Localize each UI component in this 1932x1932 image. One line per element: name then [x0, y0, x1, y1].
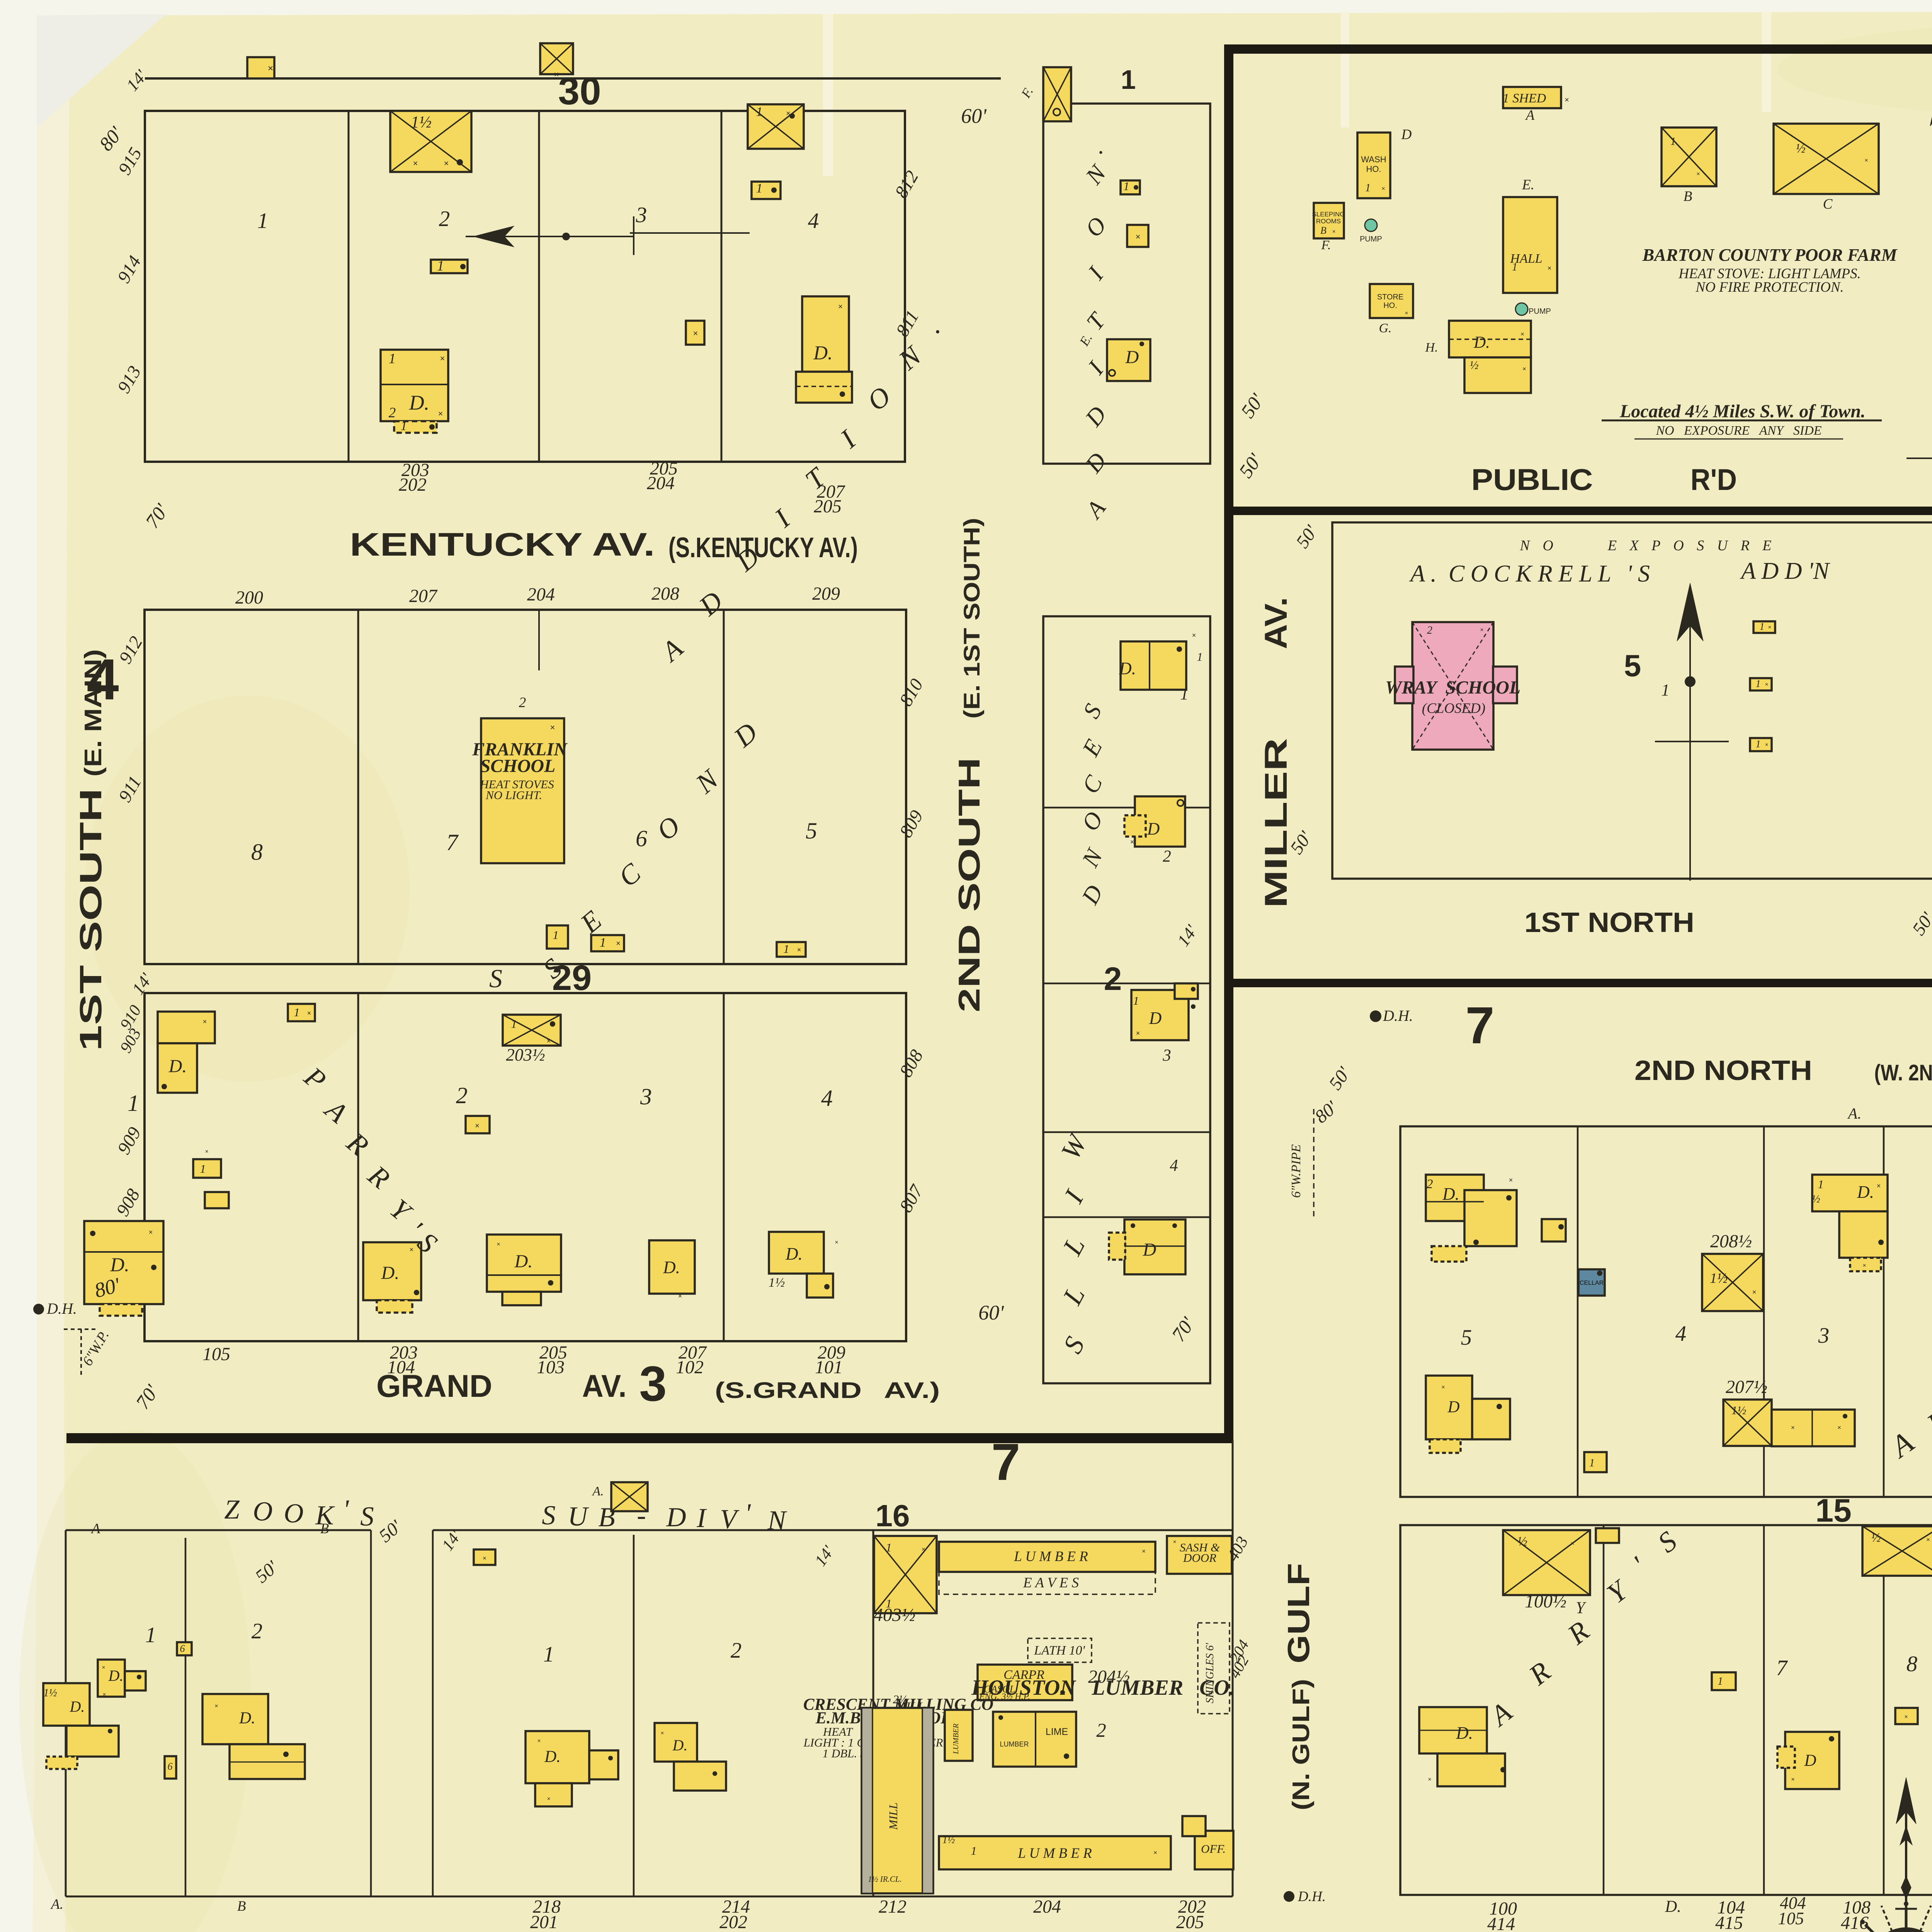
svg-text:×: ×: [1864, 157, 1868, 164]
svg-text:AV.: AV.: [582, 1369, 627, 1404]
svg-text:SCHOOL: SCHOOL: [480, 756, 556, 776]
svg-text:×: ×: [547, 1796, 551, 1802]
svg-text:×: ×: [1791, 1424, 1795, 1431]
svg-text:(E. 1ST SOUTH): (E. 1ST SOUTH): [959, 518, 985, 719]
svg-text:1: 1: [756, 181, 763, 196]
svg-text:100½: 100½: [1525, 1591, 1566, 1612]
svg-text:1: 1: [1365, 182, 1371, 194]
svg-text:×: ×: [661, 1730, 664, 1736]
svg-text:×: ×: [444, 158, 449, 168]
svg-text:×: ×: [483, 1554, 486, 1562]
svg-text:ROOMS: ROOMS: [1316, 218, 1341, 225]
svg-text:D: D: [1401, 127, 1412, 143]
svg-text:415: 415: [1715, 1913, 1743, 1932]
svg-text:A . C O C K R E L L: A . C O C K R E L L: [1409, 561, 1611, 587]
svg-text:1: 1: [1180, 685, 1189, 703]
svg-text:×: ×: [1571, 1540, 1575, 1547]
svg-text:2: 2: [731, 1638, 742, 1663]
svg-text:×: ×: [1480, 627, 1483, 633]
svg-text:1: 1: [1197, 650, 1203, 663]
svg-text:×: ×: [1768, 624, 1772, 631]
svg-text:7: 7: [1465, 996, 1494, 1054]
svg-text:×: ×: [786, 109, 791, 118]
svg-text:6: 6: [636, 826, 647, 851]
svg-text:1: 1: [294, 1005, 300, 1019]
svg-text:1½: 1½: [44, 1687, 57, 1699]
svg-text:×: ×: [1381, 185, 1385, 192]
svg-text:×: ×: [1765, 742, 1769, 748]
svg-text:6: 6: [168, 1761, 173, 1772]
svg-text:U: U: [568, 1502, 589, 1532]
svg-text:403½: 403½: [874, 1605, 915, 1625]
svg-text:' S: ' S: [1627, 561, 1650, 587]
svg-text:105: 105: [1778, 1909, 1804, 1928]
svg-text:B: B: [1320, 225, 1327, 236]
svg-text:NO LIGHT.: NO LIGHT.: [485, 788, 542, 802]
svg-text:D: D: [1149, 1009, 1162, 1028]
svg-text:D.: D.: [108, 1667, 124, 1684]
svg-text:I: I: [696, 1503, 707, 1533]
svg-text:½: ½: [1796, 141, 1806, 156]
svg-text:2: 2: [1427, 1177, 1433, 1191]
svg-text:D.: D.: [813, 342, 833, 364]
svg-text:D.: D.: [544, 1748, 561, 1766]
svg-text:LUMBER: LUMBER: [1000, 1740, 1029, 1748]
svg-text:1: 1: [1718, 1675, 1723, 1687]
svg-text:200: 200: [235, 587, 263, 608]
svg-text:×: ×: [307, 1009, 311, 1017]
svg-text:C: C: [1823, 196, 1833, 212]
svg-text:PUMP: PUMP: [1360, 235, 1382, 243]
svg-text:NO EXPOSURE ANY SIDE: NO EXPOSURE ANY SIDE: [1655, 423, 1821, 438]
svg-text:102: 102: [676, 1357, 704, 1378]
svg-text:DOOR: DOOR: [1183, 1551, 1216, 1565]
svg-text:4: 4: [821, 1085, 833, 1111]
svg-text:207: 207: [409, 586, 438, 606]
svg-text:1: 1: [437, 258, 444, 274]
svg-text:×: ×: [1441, 1384, 1445, 1391]
svg-text:4: 4: [1675, 1321, 1687, 1346]
svg-text:7: 7: [1776, 1656, 1788, 1680]
svg-text:202: 202: [399, 474, 427, 495]
svg-text:1½: 1½: [769, 1276, 785, 1290]
svg-text:×: ×: [554, 70, 559, 79]
svg-text:Z: Z: [224, 1495, 240, 1525]
svg-text:D.: D.: [168, 1056, 187, 1077]
svg-text:D.: D.: [514, 1251, 533, 1272]
svg-text:×: ×: [268, 63, 274, 74]
svg-text:×: ×: [537, 1738, 541, 1744]
svg-text:212: 212: [879, 1896, 906, 1917]
svg-text:D.H.: D.H.: [46, 1300, 77, 1317]
svg-text:STORE: STORE: [1377, 293, 1404, 301]
svg-text:1 SHED: 1 SHED: [1503, 91, 1546, 105]
svg-text:1: 1: [1123, 179, 1129, 193]
svg-text:1: 1: [389, 351, 396, 367]
svg-text:D.: D.: [1119, 659, 1136, 678]
svg-text:2: 2: [1096, 1720, 1106, 1742]
svg-text:S: S: [489, 964, 502, 993]
svg-text:LIME: LIME: [1046, 1726, 1068, 1737]
svg-text:×: ×: [1765, 681, 1769, 688]
svg-text:1: 1: [1756, 678, 1761, 689]
svg-text:1½ IR.CL.: 1½ IR.CL.: [868, 1874, 902, 1884]
svg-text:2: 2: [456, 1083, 468, 1108]
svg-text:×: ×: [1520, 330, 1524, 338]
svg-text:BARTON COUNTY POOR FARM: BARTON COUNTY POOR FARM: [1642, 245, 1898, 265]
svg-text:414: 414: [1487, 1914, 1515, 1932]
svg-text:(E. MAIN): (E. MAIN): [80, 649, 107, 777]
svg-text:×: ×: [547, 1037, 551, 1045]
svg-text:60': 60': [961, 104, 987, 128]
svg-text:1: 1: [1670, 136, 1676, 148]
svg-text:(S.GRAND: (S.GRAND: [715, 1378, 862, 1403]
svg-text:HO.: HO.: [1366, 164, 1381, 174]
svg-text:×: ×: [922, 1546, 925, 1553]
svg-text:½: ½: [1517, 1534, 1527, 1549]
svg-text:E A V E S: E A V E S: [1023, 1575, 1079, 1591]
svg-text:×: ×: [1136, 1029, 1140, 1037]
svg-text:×: ×: [203, 1018, 207, 1026]
svg-text:½: ½: [1871, 1531, 1881, 1545]
svg-text:×: ×: [149, 1228, 153, 1236]
svg-text:(N. GULF): (N. GULF): [1288, 1679, 1315, 1810]
svg-text:A D D 'N: A D D 'N: [1740, 558, 1830, 584]
svg-text:D.H.: D.H.: [1298, 1889, 1326, 1905]
svg-text:B: B: [237, 1898, 246, 1914]
svg-text:GULF: GULF: [1281, 1563, 1316, 1663]
svg-text:202: 202: [719, 1912, 747, 1932]
svg-text:OFF.: OFF.: [1201, 1842, 1226, 1855]
svg-text:2ND SOUTH: 2ND SOUTH: [952, 757, 986, 1012]
svg-text:R'D: R'D: [1690, 463, 1737, 497]
svg-text:×: ×: [1192, 631, 1196, 639]
svg-text:×: ×: [102, 1664, 105, 1671]
svg-text:209: 209: [812, 583, 840, 604]
svg-text:3: 3: [640, 1084, 652, 1109]
svg-text:1: 1: [1512, 261, 1517, 273]
svg-text:½: ½: [1812, 1193, 1820, 1205]
svg-text:×: ×: [1509, 1176, 1513, 1184]
svg-text:D: D: [1143, 1240, 1156, 1260]
svg-text:×: ×: [693, 328, 698, 338]
svg-text:2: 2: [1163, 847, 1171, 866]
svg-text:HO.: HO.: [1383, 301, 1397, 310]
svg-text:HOUSTON LUMBER CO.: HOUSTON LUMBER CO.: [971, 1676, 1235, 1700]
svg-text:1: 1: [145, 1623, 156, 1647]
svg-text:208: 208: [651, 583, 679, 604]
svg-text:6"W.PIPE: 6"W.PIPE: [1289, 1144, 1303, 1198]
svg-text:60': 60': [978, 1301, 1004, 1324]
svg-text:1: 1: [543, 1642, 554, 1667]
svg-text:D.H.: D.H.: [1383, 1007, 1413, 1024]
svg-text:×: ×: [1173, 1539, 1177, 1545]
svg-text:D: D: [1147, 819, 1160, 838]
svg-text:5: 5: [1461, 1325, 1472, 1350]
svg-text:D.: D.: [663, 1258, 680, 1277]
svg-text:½: ½: [1469, 358, 1478, 372]
svg-text:L U M B E R: L U M B E R: [1017, 1845, 1092, 1861]
svg-text:1: 1: [783, 942, 789, 956]
svg-text:×: ×: [1752, 1288, 1757, 1296]
svg-text:×: ×: [1877, 1182, 1881, 1190]
svg-text:B: B: [320, 1521, 329, 1537]
svg-text:LUMBER: LUMBER: [952, 1724, 960, 1755]
svg-text:×: ×: [1837, 1424, 1841, 1431]
svg-text:B: B: [1684, 189, 1692, 204]
svg-text:AV.: AV.: [1259, 597, 1294, 649]
svg-text:1: 1: [401, 419, 407, 433]
svg-text:1: 1: [1589, 1457, 1595, 1469]
svg-text:16: 16: [876, 1498, 910, 1533]
svg-text:1: 1: [1818, 1177, 1824, 1191]
svg-text:D: D: [1804, 1752, 1816, 1770]
svg-text:D: D: [666, 1502, 686, 1532]
svg-text:×: ×: [103, 1691, 106, 1698]
svg-text:D.: D.: [785, 1244, 803, 1264]
svg-text:WASH: WASH: [1361, 155, 1386, 164]
svg-text:×: ×: [1926, 1536, 1930, 1543]
svg-text:O: O: [284, 1498, 303, 1529]
svg-text:H.: H.: [1425, 340, 1438, 355]
svg-text:D.: D.: [409, 391, 430, 414]
svg-text:4: 4: [808, 209, 819, 233]
svg-text:×: ×: [1696, 171, 1700, 177]
svg-text:3: 3: [639, 1356, 667, 1412]
svg-text:×: ×: [438, 409, 443, 418]
svg-text:8: 8: [251, 839, 263, 865]
svg-text:D.: D.: [1456, 1723, 1473, 1743]
svg-text:×: ×: [413, 158, 418, 168]
svg-text:D.: D.: [110, 1254, 129, 1276]
svg-text:Y: Y: [1576, 1599, 1587, 1617]
svg-text:': ': [343, 1495, 349, 1525]
svg-text:3: 3: [1162, 1046, 1171, 1065]
svg-text:SLEEPING: SLEEPING: [1312, 211, 1345, 218]
svg-text:1: 1: [600, 935, 606, 950]
svg-text:1: 1: [511, 1017, 517, 1031]
svg-text:3: 3: [1818, 1323, 1830, 1348]
svg-text:A.: A.: [1847, 1105, 1861, 1122]
svg-text:1: 1: [1661, 681, 1670, 699]
svg-text:1ST NORTH: 1ST NORTH: [1524, 907, 1694, 938]
svg-text:D.: D.: [1473, 333, 1490, 352]
svg-text:29: 29: [552, 958, 592, 998]
svg-text:201: 201: [530, 1912, 558, 1932]
svg-text:105: 105: [202, 1344, 230, 1364]
svg-text:1ST SOUTH: 1ST SOUTH: [73, 788, 108, 1051]
svg-text:1½: 1½: [1731, 1403, 1747, 1417]
svg-text:1½: 1½: [942, 1834, 955, 1845]
svg-text:2: 2: [439, 207, 450, 231]
svg-text:1: 1: [1756, 738, 1761, 750]
svg-text:MILL: MILL: [886, 1803, 900, 1830]
svg-text:G.: G.: [1379, 321, 1391, 335]
svg-text:KENTUCKY AV.: KENTUCKY AV.: [350, 526, 655, 563]
svg-text:D.: D.: [1665, 1898, 1681, 1916]
svg-text:7: 7: [446, 830, 459, 855]
svg-text:1: 1: [756, 105, 763, 119]
svg-text:204: 204: [647, 473, 675, 493]
svg-text:D.: D.: [381, 1263, 400, 1283]
svg-text:×: ×: [1153, 1849, 1157, 1856]
svg-text:O: O: [253, 1497, 272, 1527]
svg-text:205: 205: [814, 496, 842, 517]
svg-text:×: ×: [1405, 310, 1408, 316]
svg-text:2: 2: [389, 405, 396, 421]
svg-text:×: ×: [1522, 365, 1526, 372]
svg-text:GRAND: GRAND: [376, 1369, 492, 1404]
svg-text:×: ×: [1428, 1776, 1431, 1783]
svg-text:×: ×: [1136, 232, 1141, 241]
svg-text:D.: D.: [70, 1698, 85, 1715]
svg-text:×: ×: [440, 354, 445, 363]
svg-text:×: ×: [838, 303, 843, 311]
svg-text:×: ×: [1497, 1714, 1501, 1721]
svg-text:2: 2: [252, 1619, 263, 1643]
svg-text:×: ×: [214, 1703, 218, 1709]
svg-text:×: ×: [1565, 96, 1569, 104]
svg-text:204: 204: [1033, 1896, 1061, 1917]
svg-text:(S.KENTUCKY AV.): (S.KENTUCKY AV.): [668, 532, 858, 563]
svg-text:Located 4½ Miles S.W. of Town.: Located 4½ Miles S.W. of Town.: [1619, 401, 1866, 422]
svg-text:×: ×: [1142, 1548, 1146, 1555]
svg-text:×: ×: [835, 1239, 838, 1246]
svg-text:6: 6: [180, 1643, 185, 1654]
svg-text:7: 7: [991, 1433, 1020, 1491]
svg-text:2ND NORTH: 2ND NORTH: [1634, 1055, 1812, 1086]
svg-text:5: 5: [806, 818, 817, 844]
svg-text:CELLAR: CELLAR: [1580, 1280, 1604, 1286]
svg-text:E.: E.: [1522, 177, 1534, 193]
svg-text:2: 2: [1427, 624, 1432, 636]
svg-text:N O E X P O S U R E: N O E X P O S U R E: [1519, 537, 1776, 554]
svg-text:1: 1: [1121, 65, 1136, 95]
svg-text:×: ×: [678, 1292, 682, 1300]
svg-text:×: ×: [616, 939, 621, 948]
svg-text:': ': [745, 1498, 751, 1529]
svg-text:F.: F.: [1321, 238, 1331, 252]
svg-text:WRAY SCHOOL: WRAY SCHOOL: [1385, 677, 1520, 698]
svg-text:4: 4: [1170, 1156, 1178, 1175]
svg-text:×: ×: [550, 723, 555, 732]
svg-text:5: 5: [1624, 648, 1641, 683]
svg-text:203½: 203½: [506, 1045, 545, 1065]
svg-text:1: 1: [257, 209, 269, 233]
svg-text:×: ×: [1791, 1776, 1794, 1783]
svg-text:NO FIRE PROTECTION.: NO FIRE PROTECTION.: [1695, 279, 1844, 295]
svg-text:15: 15: [1815, 1492, 1851, 1529]
svg-text:A.: A.: [50, 1896, 63, 1912]
svg-text:(CLOSED): (CLOSED): [1422, 701, 1485, 716]
svg-text:D.: D.: [1857, 1182, 1874, 1202]
svg-text:D.: D.: [1442, 1184, 1459, 1204]
svg-text:101: 101: [815, 1357, 843, 1378]
svg-text:1: 1: [971, 1844, 977, 1857]
svg-text:×: ×: [497, 1241, 500, 1248]
svg-text:MILLER: MILLER: [1259, 738, 1294, 908]
svg-text:208½: 208½: [1710, 1231, 1752, 1252]
svg-text:S: S: [360, 1502, 374, 1532]
svg-text:D.: D.: [672, 1736, 688, 1754]
svg-text:1½: 1½: [411, 113, 432, 131]
svg-text:D: D: [1447, 1398, 1459, 1416]
svg-text:2: 2: [1104, 961, 1122, 997]
svg-text:×: ×: [1862, 1262, 1866, 1269]
svg-text:1: 1: [128, 1090, 139, 1116]
svg-text:D.: D.: [239, 1709, 255, 1727]
svg-text:×: ×: [797, 946, 801, 954]
svg-text:×: ×: [1332, 228, 1336, 235]
svg-text:×: ×: [1130, 838, 1134, 846]
svg-text:×: ×: [1548, 264, 1552, 272]
svg-text:A: A: [1525, 107, 1535, 123]
svg-text:1: 1: [200, 1162, 206, 1175]
svg-text:LATH 10': LATH 10': [1034, 1643, 1085, 1658]
svg-text:×: ×: [1904, 1714, 1908, 1720]
svg-text:A.: A.: [592, 1484, 604, 1498]
svg-text:2: 2: [519, 695, 526, 711]
svg-text:1: 1: [1133, 994, 1139, 1007]
svg-text:204: 204: [527, 584, 555, 605]
svg-text:3: 3: [636, 203, 647, 227]
svg-text:205: 205: [1176, 1912, 1204, 1932]
svg-text:D: D: [1125, 347, 1139, 367]
svg-text:8: 8: [1906, 1652, 1918, 1676]
svg-text:103: 103: [537, 1357, 565, 1378]
svg-text:×: ×: [205, 1148, 208, 1155]
svg-text:L U M B E R: L U M B E R: [1014, 1549, 1088, 1565]
svg-text:PUBLIC: PUBLIC: [1471, 463, 1593, 497]
svg-text:1: 1: [553, 928, 559, 942]
svg-text:1½: 1½: [1710, 1270, 1728, 1286]
svg-text:S: S: [542, 1500, 556, 1531]
svg-text:1: 1: [1760, 621, 1765, 632]
svg-text:A: A: [90, 1521, 100, 1537]
svg-text:AV.): AV.): [884, 1378, 940, 1403]
svg-text:1: 1: [886, 1541, 892, 1554]
svg-text:PUMP: PUMP: [1529, 307, 1551, 316]
svg-text:(W. 2ND NORTH): (W. 2ND NORTH): [1874, 1060, 1932, 1085]
svg-text:30: 30: [558, 70, 601, 113]
svg-text:207½: 207½: [1726, 1377, 1767, 1397]
svg-text:×: ×: [475, 1122, 480, 1130]
